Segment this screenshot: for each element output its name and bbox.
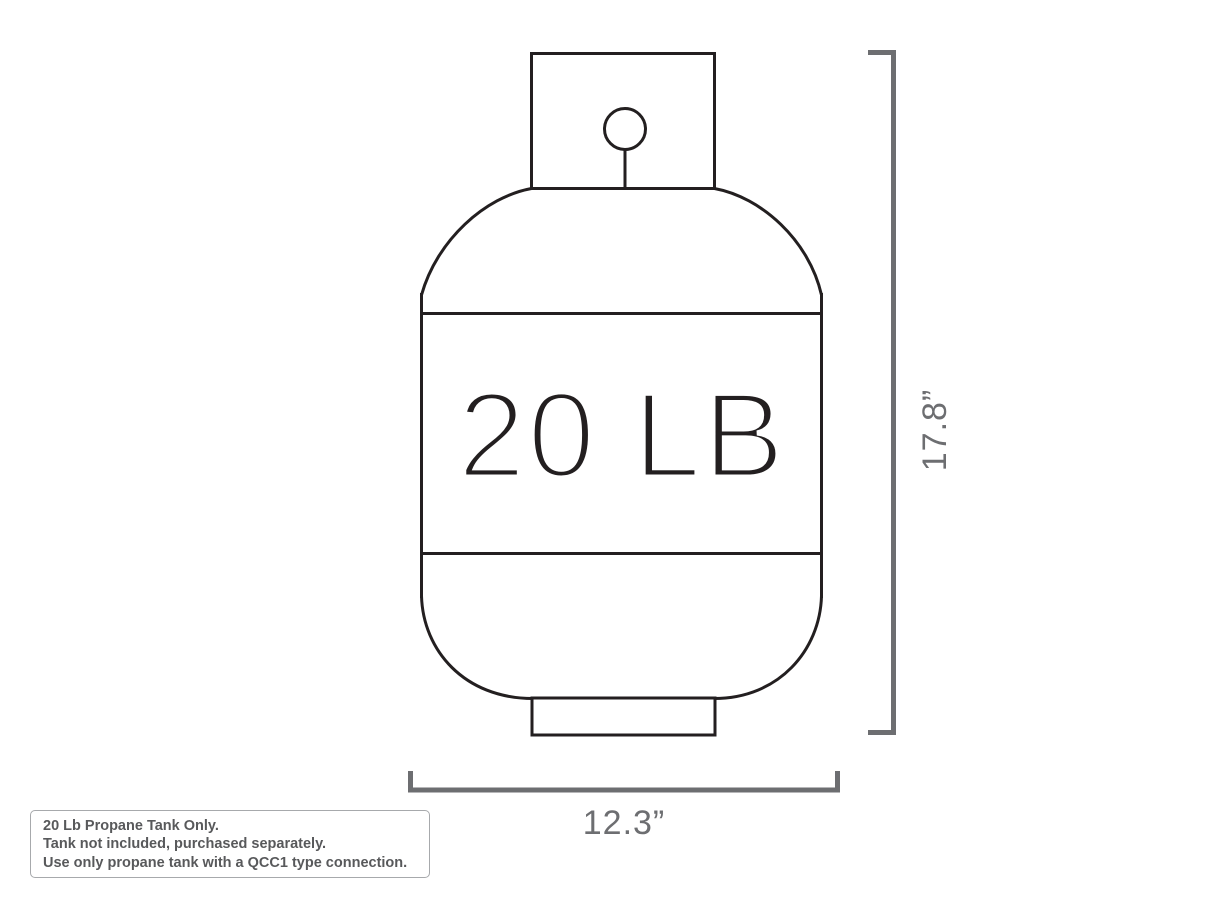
width-dimension-bracket (411, 771, 838, 790)
note-line-3: Use only propane tank with a QCC1 type c… (43, 854, 417, 872)
tank-collar (532, 54, 715, 189)
note-line-2: Tank not included, purchased separately. (43, 835, 417, 853)
tank-bottom-curve-left (422, 596, 534, 699)
width-dimension-label: 12.3” (583, 804, 666, 842)
height-dimension-bracket (868, 53, 894, 733)
note-box: 20 Lb Propane Tank Only. Tank not includ… (30, 810, 430, 878)
diagram-stage: 20 LB 17.8” 12.3” 20 Lb Propane Tank Onl… (0, 0, 1214, 911)
note-line-1: 20 Lb Propane Tank Only. (43, 817, 417, 835)
tank-shoulder-right (715, 189, 822, 296)
tank-shoulder-left (422, 189, 532, 296)
height-dimension-label: 17.8” (916, 389, 954, 472)
tank-foot-ring (532, 698, 715, 735)
tank-weight-label: 20 LB (458, 367, 787, 503)
propane-tank-diagram: 20 LB 17.8” 12.3” (0, 0, 1214, 911)
tank-bottom-curve-right (714, 596, 822, 699)
valve-circle-icon (605, 109, 646, 150)
